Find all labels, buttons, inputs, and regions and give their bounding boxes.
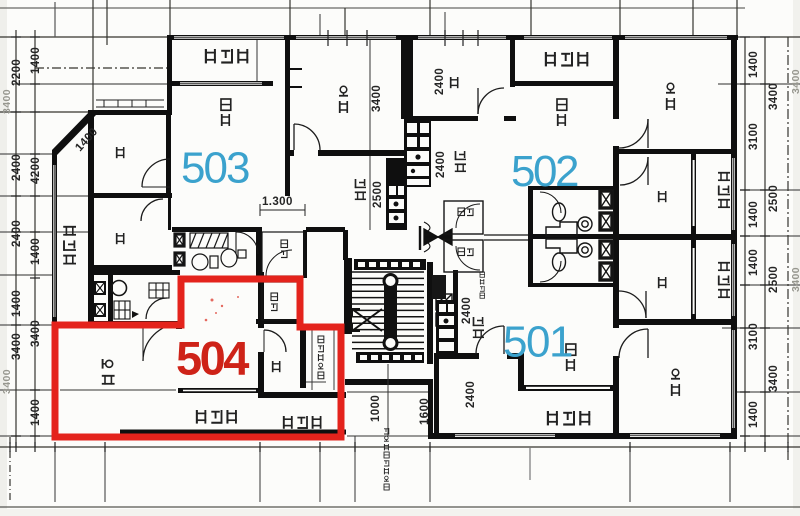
svg-text:3100: 3100 — [748, 323, 760, 350]
svg-text:3400: 3400 — [768, 365, 780, 392]
svg-text:3400: 3400 — [1, 369, 13, 394]
svg-text:1400: 1400 — [30, 47, 42, 74]
svg-text:2400: 2400 — [434, 68, 446, 95]
svg-text:1400: 1400 — [748, 51, 760, 78]
svg-text:1400: 1400 — [748, 249, 760, 276]
svg-text:504: 504 — [176, 332, 249, 385]
svg-text:2400: 2400 — [11, 220, 23, 247]
svg-text:1000: 1000 — [370, 395, 382, 422]
svg-text:2500: 2500 — [372, 181, 384, 208]
svg-text:1400: 1400 — [30, 238, 42, 265]
svg-text:1400: 1400 — [748, 201, 760, 228]
svg-text:4200: 4200 — [30, 157, 42, 184]
svg-text:2400: 2400 — [435, 151, 447, 178]
svg-text:3400: 3400 — [11, 333, 23, 360]
svg-text:3400: 3400 — [790, 69, 800, 94]
svg-text:501: 501 — [503, 318, 572, 367]
svg-text:1400: 1400 — [748, 401, 760, 428]
svg-text:3400: 3400 — [30, 320, 42, 347]
svg-text:2400: 2400 — [11, 154, 23, 181]
svg-text:2400: 2400 — [465, 381, 477, 408]
svg-text:503: 503 — [181, 144, 249, 193]
svg-text:3400: 3400 — [768, 83, 780, 110]
svg-text:2500: 2500 — [768, 185, 780, 212]
svg-text:2200: 2200 — [11, 59, 23, 86]
svg-text:1600: 1600 — [419, 398, 431, 425]
svg-text:3400: 3400 — [790, 267, 800, 292]
svg-text:502: 502 — [511, 147, 578, 196]
svg-text:2500: 2500 — [768, 266, 780, 293]
svg-text:1400: 1400 — [30, 399, 42, 426]
svg-text:3400: 3400 — [1, 89, 13, 114]
svg-text:2400: 2400 — [461, 297, 473, 324]
svg-text:3100: 3100 — [748, 123, 760, 150]
svg-text:1400: 1400 — [11, 290, 23, 317]
svg-text:1.300: 1.300 — [262, 196, 293, 208]
svg-text:3400: 3400 — [371, 85, 383, 112]
